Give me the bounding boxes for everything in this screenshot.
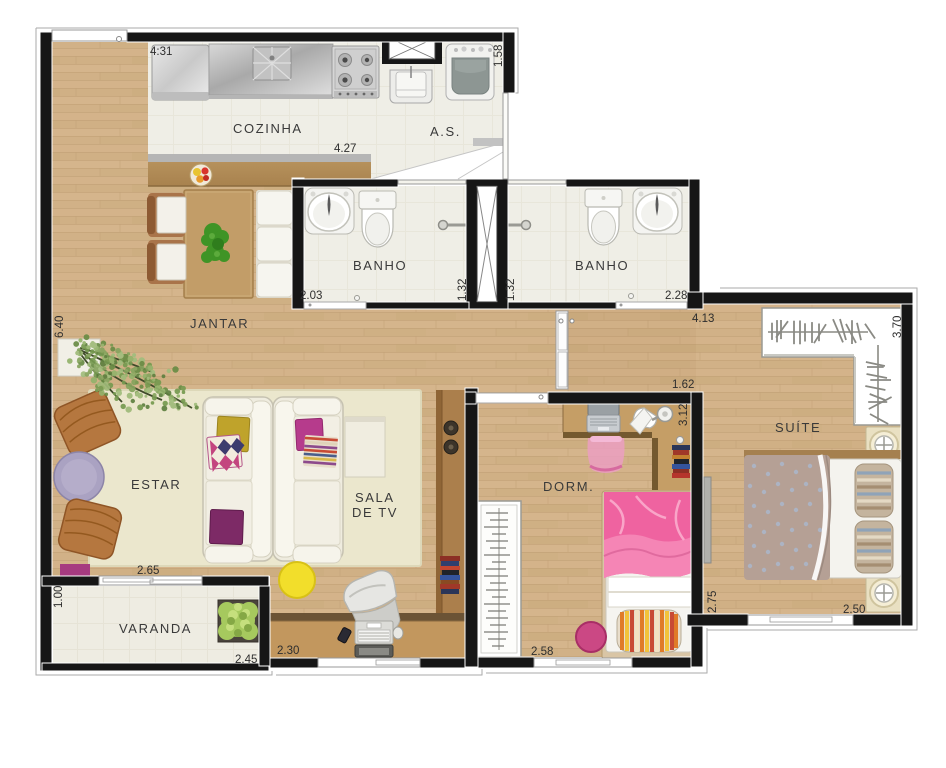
svg-text:2.03: 2.03	[300, 290, 322, 302]
svg-text:JANTAR: JANTAR	[190, 316, 249, 331]
svg-text:2.65: 2.65	[137, 565, 159, 577]
svg-text:4.27: 4.27	[334, 143, 356, 155]
svg-text:1.00: 1.00	[53, 586, 65, 608]
svg-text:SALA: SALA	[355, 490, 395, 505]
svg-text:3.70: 3.70	[892, 316, 904, 338]
svg-text:ESTAR: ESTAR	[131, 477, 181, 492]
svg-text:6.40: 6.40	[54, 316, 66, 338]
svg-text:VARANDA: VARANDA	[119, 621, 192, 636]
svg-text:A.S.: A.S.	[430, 124, 461, 139]
svg-text:1.62: 1.62	[672, 379, 694, 391]
svg-text:2.30: 2.30	[277, 645, 299, 657]
svg-text:BANHO: BANHO	[353, 258, 407, 273]
svg-text:SUÍTE: SUÍTE	[775, 420, 821, 435]
svg-text:COZINHA: COZINHA	[233, 121, 303, 136]
svg-text:1.58: 1.58	[493, 45, 505, 67]
svg-text:1.32: 1.32	[457, 279, 469, 301]
svg-text:2.58: 2.58	[531, 646, 553, 658]
svg-text:2.75: 2.75	[707, 591, 719, 613]
svg-text:2.28: 2.28	[665, 290, 687, 302]
svg-text:DORM.: DORM.	[543, 479, 594, 494]
svg-text:3.12: 3.12	[678, 404, 690, 426]
svg-text:BANHO: BANHO	[575, 258, 629, 273]
svg-text:1.32: 1.32	[505, 279, 517, 301]
svg-text:2.50: 2.50	[843, 604, 865, 616]
svg-text:2.45: 2.45	[235, 654, 257, 666]
svg-text:4:31: 4:31	[150, 46, 172, 58]
svg-text:DE TV: DE TV	[352, 505, 398, 520]
svg-text:4.13: 4.13	[692, 313, 714, 325]
